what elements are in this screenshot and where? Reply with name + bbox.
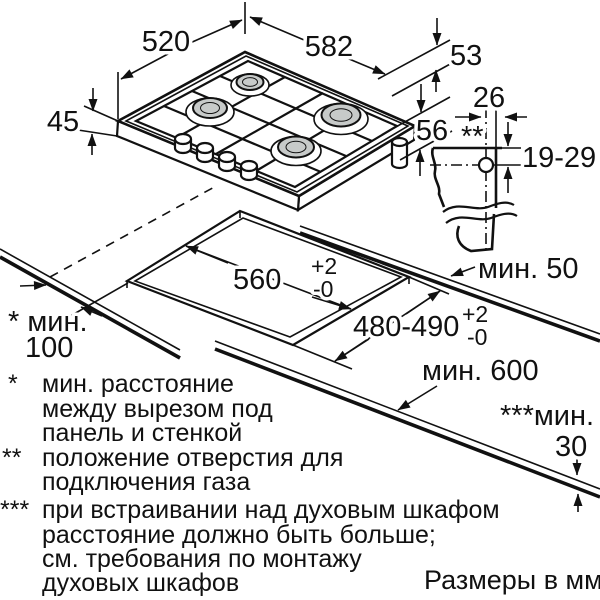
min-front-label: мин. 50 — [478, 253, 579, 285]
hob-depth-label: 520 — [142, 26, 190, 58]
min-wall-label-line2: 100 — [25, 332, 73, 364]
cutout-depth-label: 480-490 — [353, 311, 459, 343]
footnote-marker: *** — [0, 496, 29, 524]
footnote-line: панель и стенкой — [42, 419, 242, 447]
installation-diagram-page: 520 582 53 45 56 26 ** 19-29 мин. 50 560… — [0, 0, 600, 600]
min-front-leader-arrow — [451, 267, 475, 276]
edge-53-label: 53 — [450, 40, 482, 72]
profile-left-edge — [432, 148, 444, 207]
knob — [241, 161, 257, 180]
footnote-line: духовых шкафов — [42, 569, 239, 597]
knob — [175, 134, 191, 153]
footnote-line: подключения газа — [42, 468, 250, 496]
body-height-56-label: 56 — [416, 115, 448, 147]
worktop-depth-leader-arrow — [398, 386, 437, 410]
extension-line — [84, 106, 118, 121]
extension-line — [378, 40, 450, 79]
min-oven-label-line1: ***мин. — [500, 400, 594, 432]
knob — [219, 152, 235, 171]
burner-back — [231, 74, 269, 96]
cutout-depth-extension-line — [293, 345, 352, 369]
offset-26-label: 26 — [473, 82, 505, 114]
burner-right — [314, 104, 368, 135]
min-oven-label-line2: 30 — [555, 431, 587, 463]
height-45-label: 45 — [47, 106, 79, 138]
burner-front — [271, 137, 321, 166]
footnotes-block: * мин. расстояние между вырезом под пане… — [0, 370, 500, 597]
cutout-width-tolerance-sub: -0 — [313, 276, 333, 302]
extension-line — [392, 63, 452, 96]
footnote-line: при встраивании над духовым шкафом — [42, 496, 500, 524]
break-line — [446, 214, 517, 223]
hob-base-extension-line — [78, 130, 117, 136]
gas-pipe-stub — [392, 138, 407, 168]
cutout-width-label: 560 — [233, 264, 281, 296]
gas-hole — [479, 158, 493, 172]
depth-19-29-label: 19-29 — [522, 142, 596, 174]
hob-width-label: 582 — [305, 31, 353, 63]
units-caption: Размеры в мм — [424, 565, 600, 595]
footnote-marker: * — [8, 370, 18, 398]
cutout-depth-tolerance-sub: -0 — [467, 324, 487, 350]
footnote-marker: ** — [2, 444, 22, 472]
gas-marker-label: ** — [461, 121, 484, 153]
worktop-depth-label: мин. 600 — [422, 355, 539, 387]
knob — [197, 143, 213, 162]
installation-diagram: 520 582 53 45 56 26 ** 19-29 мин. 50 560… — [0, 0, 600, 600]
min-wall-arrow — [20, 285, 46, 286]
break-line — [443, 203, 514, 212]
burner-left — [186, 98, 234, 126]
footnote-line: мин. расстояние — [42, 370, 234, 398]
